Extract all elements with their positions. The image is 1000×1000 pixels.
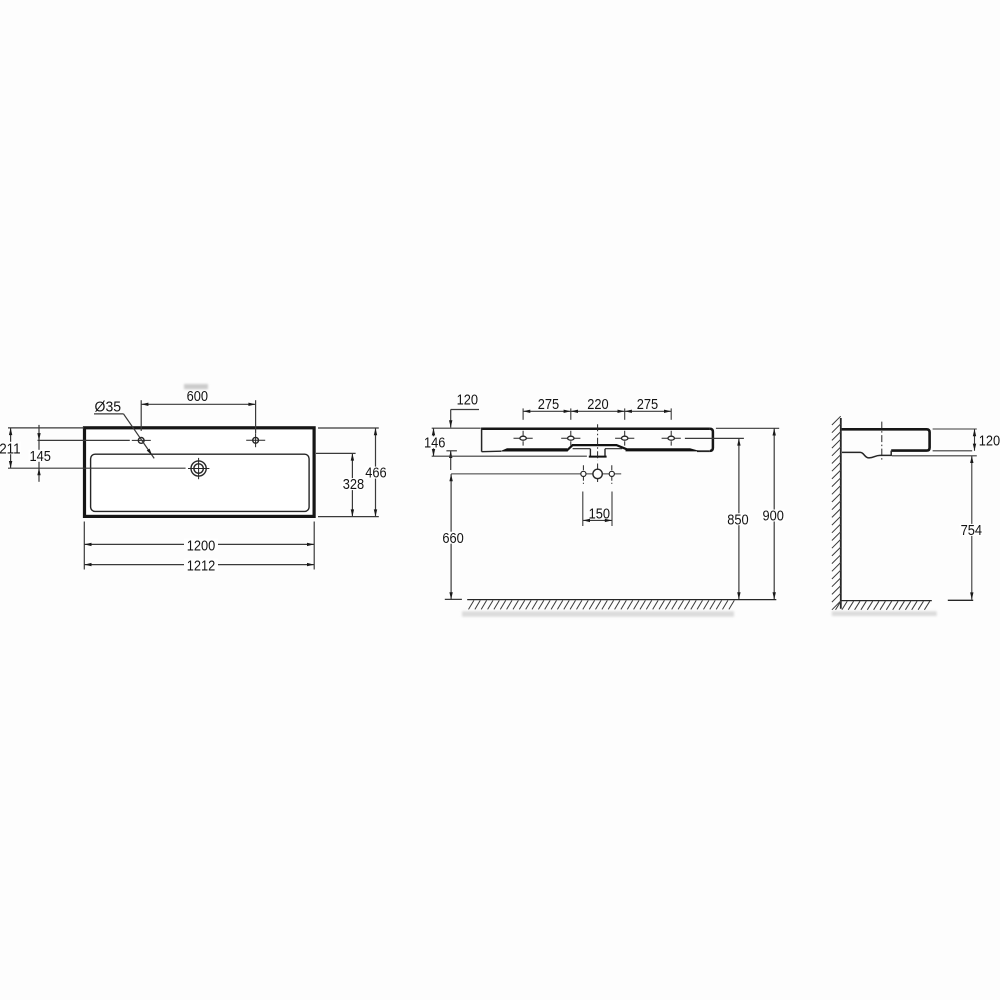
- svg-text:466: 466: [365, 465, 386, 482]
- svg-text:120: 120: [457, 392, 478, 409]
- svg-text:120: 120: [979, 432, 1000, 449]
- svg-text:660: 660: [442, 530, 463, 547]
- svg-text:150: 150: [589, 506, 610, 523]
- svg-text:850: 850: [727, 511, 748, 528]
- svg-text:Ø35: Ø35: [95, 398, 122, 415]
- svg-text:275: 275: [637, 396, 658, 413]
- svg-text:220: 220: [587, 396, 608, 413]
- svg-text:146: 146: [424, 434, 445, 451]
- svg-text:1212: 1212: [187, 558, 216, 575]
- svg-text:1200: 1200: [187, 537, 216, 554]
- svg-text:145: 145: [30, 448, 51, 465]
- svg-text:600: 600: [187, 388, 208, 405]
- svg-text:211: 211: [0, 440, 21, 457]
- svg-text:275: 275: [538, 396, 559, 413]
- svg-text:328: 328: [343, 476, 364, 493]
- svg-text:754: 754: [961, 522, 982, 539]
- svg-text:900: 900: [763, 508, 784, 525]
